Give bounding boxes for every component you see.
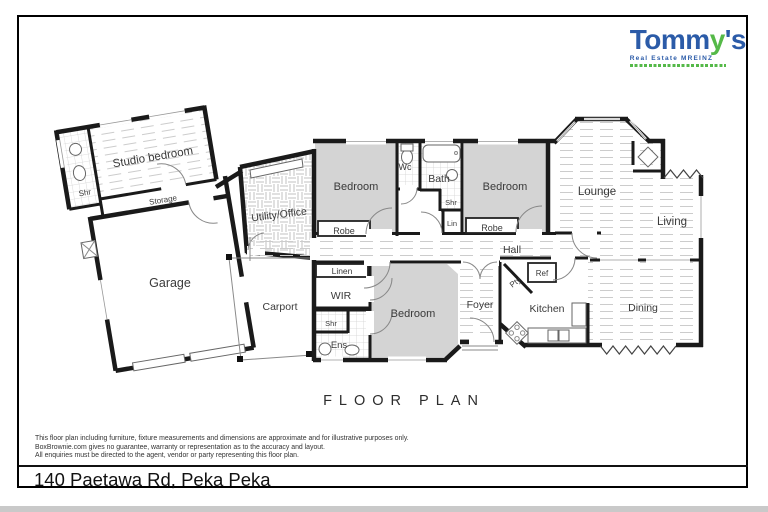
room-label-shr-ens: Shr xyxy=(325,319,337,328)
disclaimer-line-1: This floor plan including furniture, fix… xyxy=(35,435,409,444)
disclaimer-line-3: All enquiries must be directed to the ag… xyxy=(35,452,409,461)
room-label-pty: Pty xyxy=(508,275,523,289)
room-label-lounge: Lounge xyxy=(578,186,616,198)
carport-post xyxy=(306,351,312,357)
property-address: 140 Paetawa Rd, Peka Peka xyxy=(34,469,271,491)
bottom-edge-bar xyxy=(0,506,768,512)
room-label-wir: WIR xyxy=(331,290,352,302)
room-label-linen: Linen xyxy=(332,266,353,276)
room-label-ens: Ens xyxy=(331,340,348,351)
room-label-ref: Ref xyxy=(536,269,549,278)
room-label-robe2: Robe xyxy=(481,223,503,233)
disclaimer-line-2: BoxBrownie.com gives no guarantee, warra… xyxy=(35,444,409,453)
address-divider xyxy=(19,465,748,467)
room-label-bedroom3: Bedroom xyxy=(391,308,436,320)
room-label-hall: Hall xyxy=(503,244,521,256)
room-label-living: Living xyxy=(657,216,687,228)
room-label-wc: Wc xyxy=(399,162,412,172)
dining-sawtooth-windows xyxy=(600,346,676,354)
page: { "logo": { "brand_t": "Tomm", "brand_y"… xyxy=(0,0,768,512)
room-label-foyer: Foyer xyxy=(467,299,494,311)
main-house: Bedroom Robe Wc Bath Shr Lin Bedroom Rob… xyxy=(250,119,704,363)
room-label-dining: Dining xyxy=(628,302,658,314)
room-label-bedroom1: Bedroom xyxy=(334,181,379,193)
room-label-robe1: Robe xyxy=(333,226,355,236)
room-label-garage: Garage xyxy=(149,276,191,290)
living-sawtooth-windows xyxy=(664,170,703,178)
room-label-carport: Carport xyxy=(262,301,297,313)
room-label-lin: Lin xyxy=(447,219,457,228)
floor-plan-title: FLOOR PLAN xyxy=(40,393,768,409)
room-label-kitchen: Kitchen xyxy=(529,303,564,315)
left-wing: Studio bedroom Shr Storage xyxy=(54,102,258,377)
carport-post xyxy=(226,254,232,260)
carport-post xyxy=(237,356,243,362)
room-label-bath: Bath xyxy=(428,173,450,185)
disclaimer: This floor plan including furniture, fix… xyxy=(35,435,409,461)
room-label-shr-bath: Shr xyxy=(445,198,457,207)
room-label-bedroom2: Bedroom xyxy=(483,181,528,193)
